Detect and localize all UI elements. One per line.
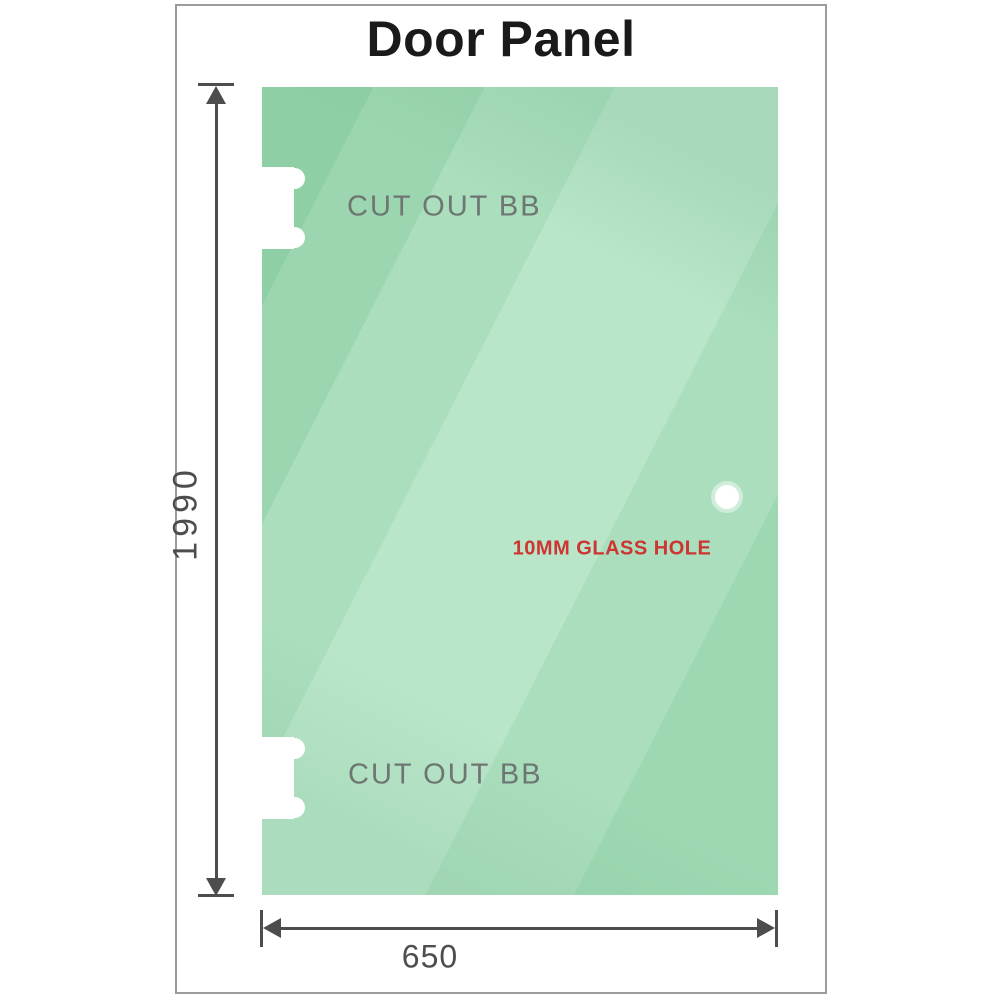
hinge-cutout-top [262, 167, 294, 249]
cutout-lobe-icon [284, 797, 305, 818]
cutout-lobe-icon [284, 227, 305, 248]
cutout-bottom-label: CUT OUT BB [348, 759, 543, 792]
glass-hole-icon [715, 485, 739, 509]
cutout-lobe-icon [284, 738, 305, 759]
arrow-right-icon [757, 918, 775, 938]
diagram-canvas: Door Panel CUT OUT BB CUT OUT BB 10MM GL… [0, 0, 1000, 1000]
height-dimension-value: 1990 [167, 465, 206, 561]
glass-hole-label: 10MM GLASS HOLE [513, 538, 712, 561]
arrow-left-icon [263, 918, 281, 938]
cutout-top-label: CUT OUT BB [347, 191, 542, 224]
hinge-cutout-bottom [262, 737, 294, 819]
height-dimension-tick-bottom [198, 894, 234, 897]
width-dimension-tick-right [775, 910, 778, 947]
width-dimension-line [281, 927, 757, 930]
cutout-lobe-icon [284, 168, 305, 189]
diagram-title: Door Panel [175, 10, 827, 68]
height-dimension-line [215, 102, 218, 878]
width-dimension-value: 650 [402, 939, 458, 976]
